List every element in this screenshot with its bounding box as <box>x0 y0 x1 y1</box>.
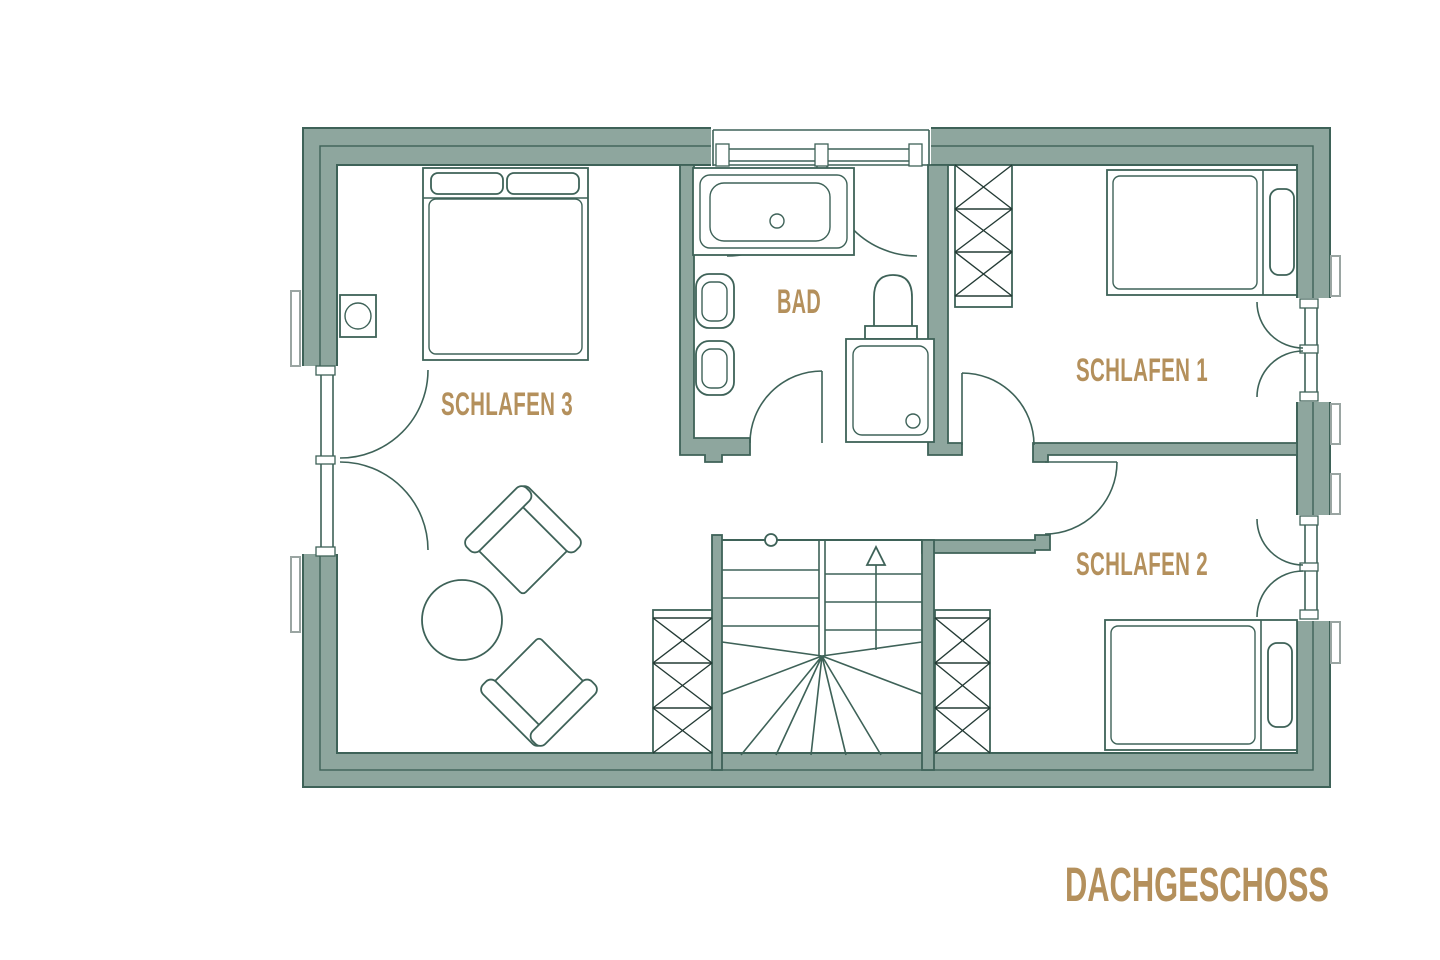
wc-symbol <box>696 274 734 328</box>
stair-schlafen2-wall <box>922 535 1050 553</box>
single-bed-symbol <box>1105 620 1297 750</box>
wardrobe-symbol <box>653 610 712 753</box>
floor-plan-page: SCHLAFEN 3 BAD SCHLAFEN 1 SCHLAFEN 2 DAC… <box>0 0 1440 960</box>
wc-bowl <box>702 282 727 321</box>
sill-mark <box>1331 404 1340 444</box>
toilet-tank <box>865 326 917 339</box>
pillow <box>507 173 579 194</box>
shower-drain <box>906 414 920 428</box>
stair-newel-post <box>765 534 777 546</box>
wardrobe-symbol <box>955 165 1012 307</box>
staircase <box>722 534 922 755</box>
sill-mark <box>1331 256 1340 296</box>
stair-winder-treads <box>722 642 922 755</box>
duvet <box>429 199 582 354</box>
round-table-symbol <box>422 580 502 660</box>
schlafen2-furniture <box>935 610 1297 753</box>
room-label-schlafen1: SCHLAFEN 1 <box>1076 352 1208 388</box>
door-jamb <box>1300 610 1318 619</box>
bathtub-symbol <box>693 168 854 255</box>
duvet <box>1113 176 1257 289</box>
pillow <box>1268 643 1292 727</box>
tub-basin <box>710 183 830 241</box>
window-mullion <box>716 144 729 166</box>
toilet-bowl <box>874 275 912 327</box>
door-jamb <box>1300 516 1318 525</box>
pillow <box>1270 189 1294 275</box>
door-jamb <box>316 366 335 375</box>
door-jamb <box>1300 299 1318 308</box>
single-bed-symbol <box>1107 170 1297 295</box>
lamp <box>345 303 371 329</box>
stair-right-wall <box>922 540 934 770</box>
schlafen1-schlafen2-divider <box>1033 443 1297 462</box>
schlafen3-furniture <box>340 168 712 753</box>
schlafen2-door <box>1045 462 1117 534</box>
window-mullion <box>815 144 828 166</box>
balcony-door-schlafen3 <box>316 366 428 556</box>
bidet-bowl <box>702 349 727 388</box>
room-label-schlafen2: SCHLAFEN 2 <box>1076 546 1208 582</box>
door-jamb <box>316 547 335 556</box>
door-jamb <box>316 456 335 464</box>
toilet-symbol <box>865 275 917 339</box>
wardrobe-body <box>935 610 990 753</box>
room-label-schlafen3: SCHLAFEN 3 <box>441 386 573 422</box>
wardrobe-body <box>653 610 712 753</box>
sill-mark <box>1331 474 1340 514</box>
sill-mark <box>291 557 300 632</box>
sill-mark <box>291 291 300 366</box>
stair-stringer <box>819 541 825 655</box>
window-mullion <box>909 144 922 166</box>
wardrobe-symbol <box>935 610 990 753</box>
sill-mark <box>1331 622 1340 663</box>
stair-direction-arrow <box>867 547 885 565</box>
pillow <box>431 173 503 194</box>
schlafen1-furniture <box>955 165 1297 307</box>
floor-title: DACHGESCHOSS <box>1065 859 1329 912</box>
door-jamb <box>1300 392 1318 401</box>
stair-left-wall <box>712 535 722 770</box>
room-label-bad: BAD <box>777 283 821 321</box>
stair-treads <box>722 570 922 630</box>
floor-plan-canvas: SCHLAFEN 3 BAD SCHLAFEN 1 SCHLAFEN 2 DAC… <box>0 0 1440 960</box>
bidet-symbol <box>696 341 734 395</box>
double-bed-symbol <box>423 168 588 360</box>
tub-drain <box>770 214 784 228</box>
shower-symbol <box>846 339 934 442</box>
duvet <box>1111 626 1255 744</box>
schlafen1-door <box>962 373 1034 445</box>
bath-door <box>750 371 822 443</box>
nightstand-symbol <box>340 295 376 337</box>
door-swing-arcs <box>340 370 428 550</box>
armchair-symbol <box>478 629 600 751</box>
